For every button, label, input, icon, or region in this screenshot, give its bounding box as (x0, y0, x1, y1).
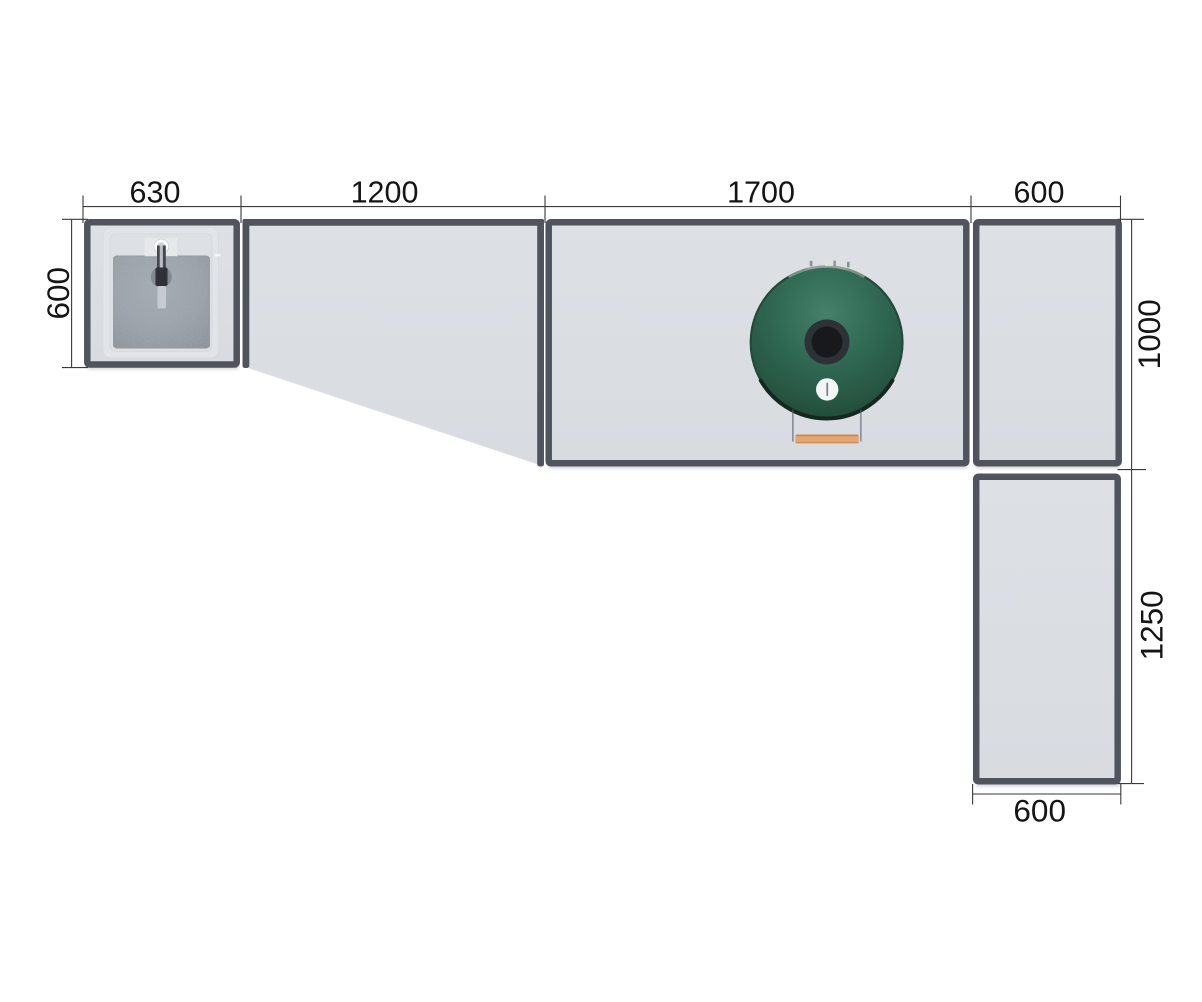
svg-text:1200: 1200 (351, 176, 419, 210)
svg-text:1700: 1700 (727, 176, 795, 210)
svg-text:600: 600 (1013, 793, 1066, 829)
svg-text:630: 630 (130, 176, 181, 210)
svg-text:1250: 1250 (1133, 590, 1169, 660)
svg-text:600: 600 (40, 267, 76, 320)
svg-text:1000: 1000 (1131, 299, 1167, 369)
svg-text:600: 600 (1014, 176, 1065, 210)
